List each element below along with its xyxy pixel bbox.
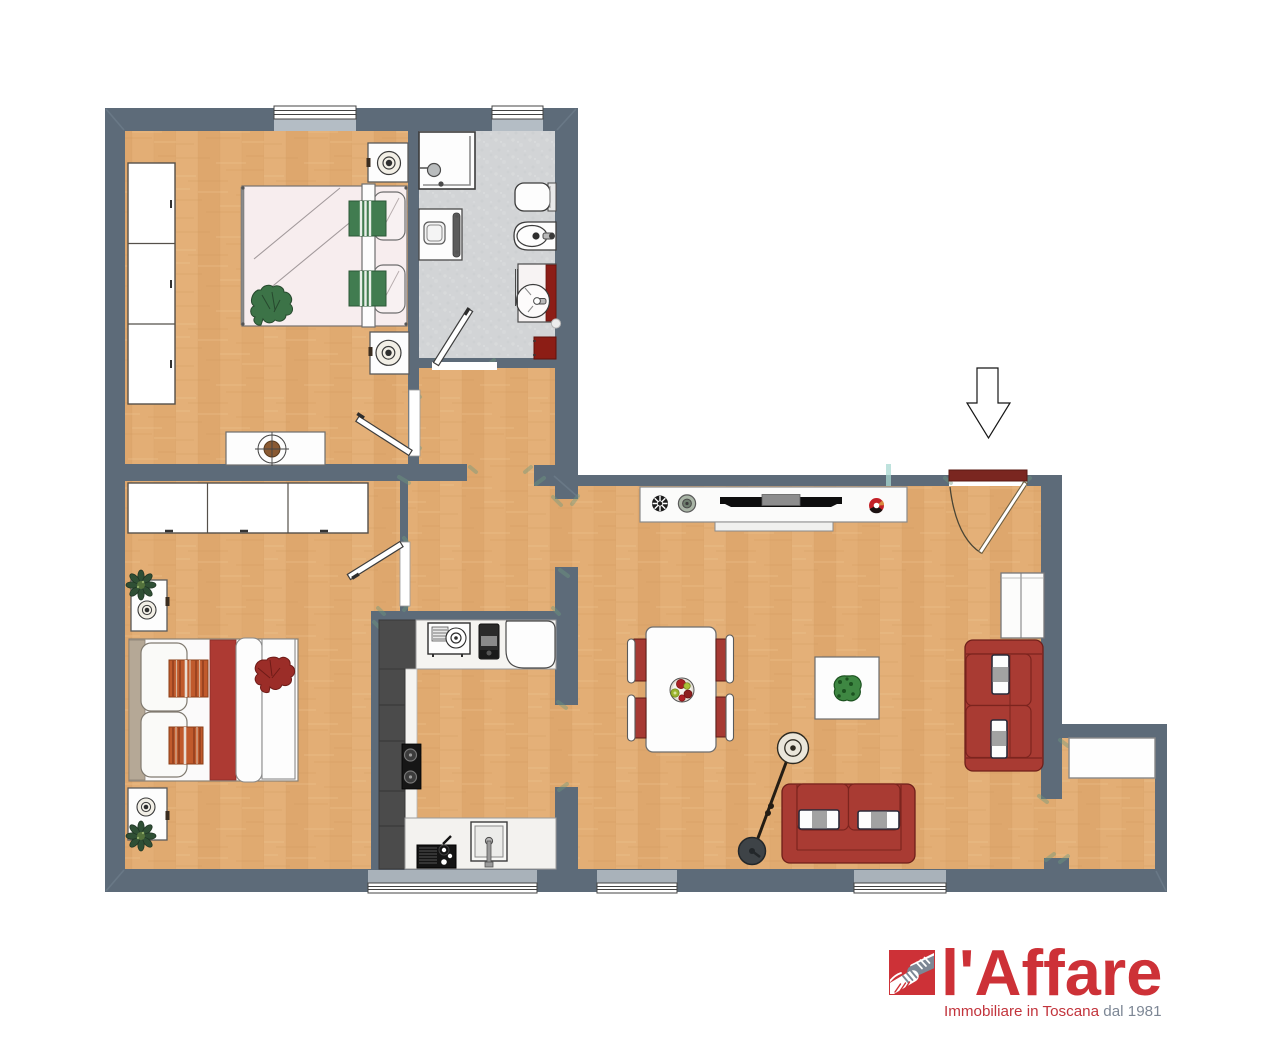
svg-text:Immobiliare in Toscana dal 198: Immobiliare in Toscana dal 1981	[944, 1003, 1162, 1020]
svg-text:l'Affare: l'Affare	[941, 936, 1162, 1009]
